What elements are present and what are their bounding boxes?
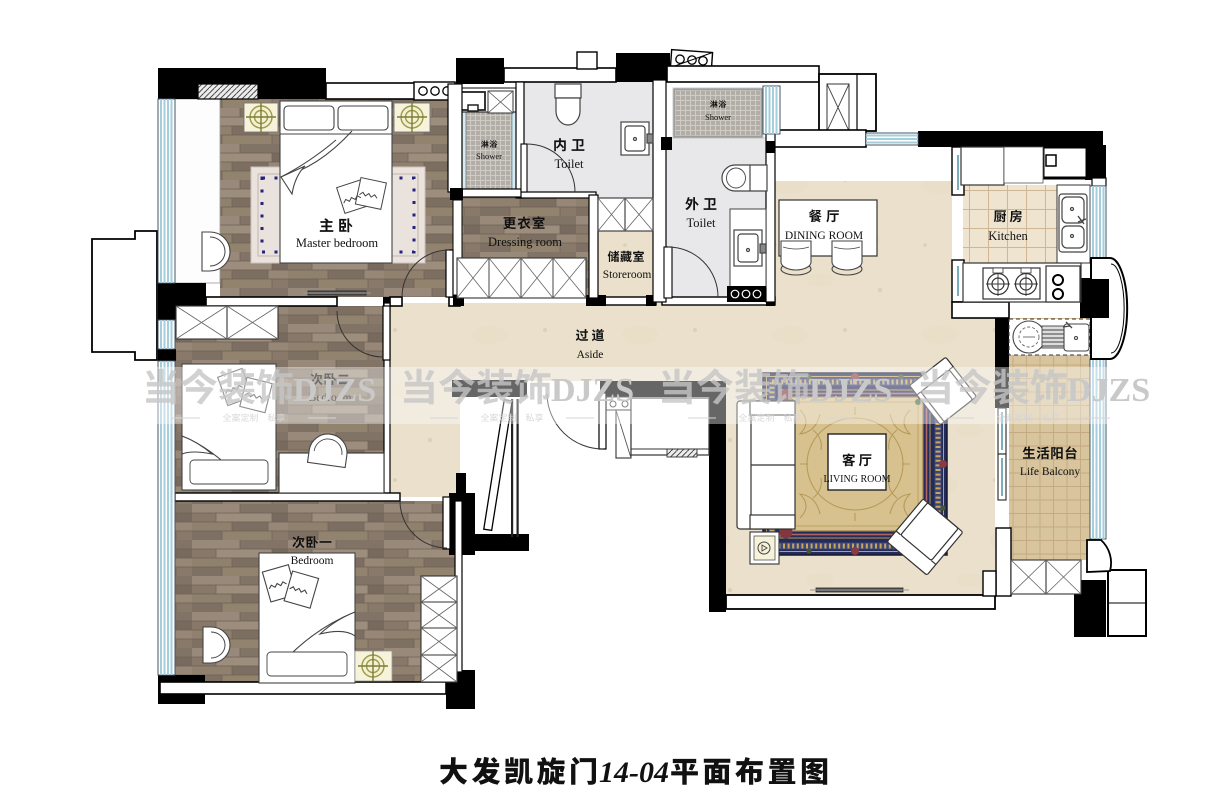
svg-text:Storeroom: Storeroom bbox=[603, 269, 652, 281]
svg-text:DJZS: DJZS bbox=[809, 372, 892, 409]
svg-text:DJZS: DJZS bbox=[1067, 372, 1150, 409]
svg-text:14-04: 14-04 bbox=[599, 756, 669, 789]
svg-text:Life Balcony: Life Balcony bbox=[1020, 466, 1081, 478]
svg-text:Kitchen: Kitchen bbox=[988, 229, 1028, 243]
svg-text:Bedroom: Bedroom bbox=[291, 555, 334, 567]
svg-text:Dressing room: Dressing room bbox=[488, 235, 562, 249]
svg-text:Toilet: Toilet bbox=[555, 157, 585, 171]
svg-text:Shower: Shower bbox=[476, 151, 502, 161]
svg-text:LIVING ROOM: LIVING ROOM bbox=[824, 474, 891, 485]
svg-text:DJZS: DJZS bbox=[293, 372, 376, 409]
svg-text:DJZS: DJZS bbox=[551, 372, 634, 409]
svg-text:Aside: Aside bbox=[577, 349, 604, 361]
svg-text:Master bedroom: Master bedroom bbox=[296, 236, 379, 250]
svg-text:Toilet: Toilet bbox=[687, 216, 717, 230]
svg-text:DINING ROOM: DINING ROOM bbox=[785, 230, 863, 242]
svg-text:Shower: Shower bbox=[705, 112, 731, 122]
